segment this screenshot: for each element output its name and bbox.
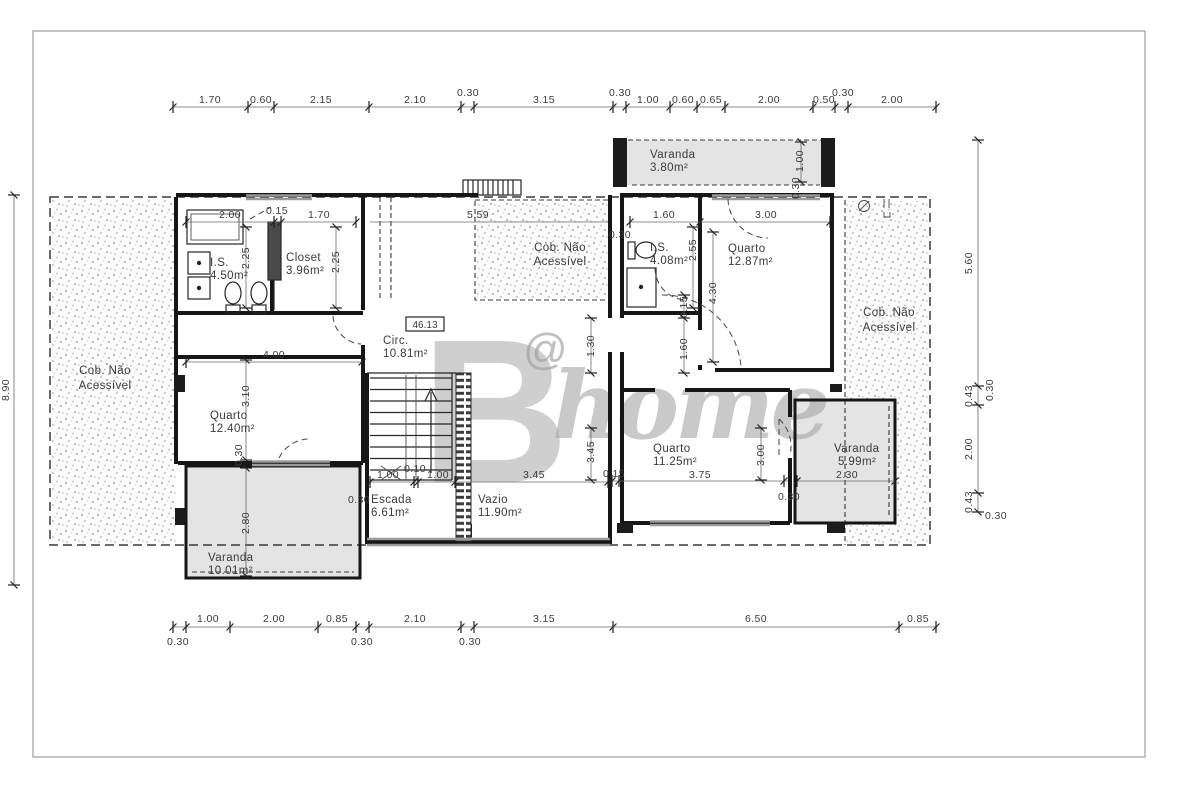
room-vazio-name: Vazio xyxy=(478,494,508,506)
dim-is-right-depth: 2.55 xyxy=(687,239,699,261)
room-escada-name: Escada xyxy=(371,494,412,506)
room-vazio-area: 11.90m² xyxy=(478,507,522,519)
dim-top-12: 0.30 xyxy=(832,87,854,99)
dim-bottom-3: 2.10 xyxy=(404,613,426,625)
dim-top-6: 0.30 xyxy=(609,87,631,99)
roof-left-label-1: Cob. Não xyxy=(79,365,131,377)
room-varanda-top-name: Varanda xyxy=(650,149,696,161)
dim-top-10: 2.00 xyxy=(758,94,780,106)
dim-stair-gap: 0.10 xyxy=(404,463,426,475)
dim-quarto-left-depth: 3.10 xyxy=(240,385,252,407)
dim-is-left-depth: 2.25 xyxy=(240,247,252,269)
floor-plan-drawing: B @ home xyxy=(0,0,1179,789)
dim-wall-015: 0.15 xyxy=(266,205,288,217)
dim-bottom-offset-1: 0.30 xyxy=(351,636,373,648)
floor-plan-sheet: B @ home xyxy=(0,0,1179,789)
room-varanda-left-name: Varanda xyxy=(208,552,254,564)
dim-top-0: 1.70 xyxy=(199,94,221,106)
room-is-right-name: I.S. xyxy=(650,242,669,254)
dim-door-160: 1.60 xyxy=(678,338,690,360)
room-is-left-name: I.S. xyxy=(210,257,229,269)
dim-top-4: 0.30 xyxy=(457,87,479,99)
dim-varanda-top-depth: 1.00 xyxy=(794,150,806,172)
room-escada-area: 6.61m² xyxy=(371,507,409,519)
dim-varanda-right-wall: 0.30 xyxy=(778,491,800,503)
dim-vazio-width: 3.45 xyxy=(523,469,545,481)
level-marker-value: 46.13 xyxy=(412,320,437,331)
dim-bottom-4: 3.15 xyxy=(533,613,555,625)
dim-jamb-015: 0.15 xyxy=(678,296,690,318)
room-quarto-br-area: 11.25m² xyxy=(653,456,697,468)
room-quarto-tr-area: 12.87m² xyxy=(728,256,773,268)
dim-circ-130: 1.30 xyxy=(585,335,597,357)
dim-bottom-offset-0: 0.30 xyxy=(167,636,189,648)
roof-right-label-2: Acessível xyxy=(863,322,916,334)
dim-right-0: 5.60 xyxy=(963,252,975,274)
dim-right-2: 2.00 xyxy=(963,438,975,460)
dim-quarto-tr-width: 3.00 xyxy=(755,209,777,221)
room-closet-name: Closet xyxy=(286,252,321,264)
room-circ-area: 10.81m² xyxy=(383,348,428,360)
pergola-hatch xyxy=(463,180,521,195)
dim-is-left-width: 2.00 xyxy=(219,209,241,221)
dim-quarto-br-depth: 3.00 xyxy=(755,444,767,466)
dim-right-offset-0: 0.30 xyxy=(984,379,996,401)
dim-is-right-width: 1.60 xyxy=(653,209,675,221)
roof-mid-label-2: Acessível xyxy=(534,256,587,268)
dim-left-total: 8.90 xyxy=(0,379,12,401)
dim-bottom-1: 2.00 xyxy=(263,613,285,625)
dim-varanda-left-depth: 2.80 xyxy=(240,512,252,534)
void-guardrail xyxy=(456,373,471,541)
dim-wall-030-left: 0.30 xyxy=(233,444,245,466)
dim-quarto-br-width: 3.75 xyxy=(689,469,711,481)
dim-bottom-5: 6.50 xyxy=(745,613,767,625)
room-quarto-left-area: 12.40m² xyxy=(210,423,255,435)
dim-is-right-wall: 0.30 xyxy=(609,229,631,241)
room-quarto-left-name: Quarto xyxy=(210,410,248,422)
dim-varanda-right-width: 2.30 xyxy=(836,469,858,481)
dim-quarto-tr-depth: 4.30 xyxy=(707,282,719,304)
dim-right-3: 0.43 xyxy=(963,491,975,513)
dim-top-8: 0.60 xyxy=(672,94,694,106)
dim-bottom-2: 0.85 xyxy=(326,613,348,625)
room-circ-name: Circ. xyxy=(383,335,409,347)
roof-left-label-2: Acessível xyxy=(79,380,132,392)
bathroom-left-fixtures xyxy=(187,210,281,313)
wardrobe xyxy=(268,222,281,280)
dim-bottom-offset-2: 0.30 xyxy=(459,636,481,648)
room-is-left-area: 4.50m² xyxy=(210,270,248,282)
dim-top-3: 2.10 xyxy=(404,94,426,106)
dim-quarto-left-width: 4.00 xyxy=(263,349,285,361)
dim-varanda-top-wall: 0.30 xyxy=(790,177,802,199)
room-varanda-right-area: 5.99m² xyxy=(838,456,876,468)
room-varanda-top-area: 3.80m² xyxy=(650,162,688,174)
dim-bottom-0: 1.00 xyxy=(197,613,219,625)
dim-vazio-depth: 3.45 xyxy=(585,441,597,463)
dim-top-1: 0.60 xyxy=(250,94,272,106)
dim-stair-flight-1: 1.00 xyxy=(377,469,399,481)
room-quarto-br-name: Quarto xyxy=(653,443,691,455)
dim-right-1: 0.43 xyxy=(963,385,975,407)
room-quarto-tr-name: Quarto xyxy=(728,243,766,255)
room-varanda-right-name: Varanda xyxy=(834,443,880,455)
dim-top-13: 2.00 xyxy=(881,94,903,106)
room-closet-area: 3.96m² xyxy=(286,265,324,277)
room-is-right-area: 4.08m² xyxy=(650,255,688,267)
dim-roof-mid-width: 5.59 xyxy=(467,209,489,221)
dim-bottom-6: 0.85 xyxy=(907,613,929,625)
dim-top-5: 3.15 xyxy=(533,94,555,106)
dim-escada-wall: 0.30 xyxy=(348,494,370,506)
dim-closet-width: 1.70 xyxy=(308,209,330,221)
dim-top-9: 0.65 xyxy=(700,94,722,106)
room-varanda-left-area: 10.01m² xyxy=(208,565,253,577)
dim-top-2: 2.15 xyxy=(310,94,332,106)
dim-quarto-br-jamb: 0.15 xyxy=(603,468,625,480)
roof-right-label-1: Cob. Não xyxy=(863,307,915,319)
dim-closet-depth: 2.25 xyxy=(330,251,342,273)
dim-stair-flight-2: 1.00 xyxy=(427,469,449,481)
dim-top-7: 1.00 xyxy=(637,94,659,106)
roof-mid-label-1: Cob. Não xyxy=(534,242,586,254)
dim-right-offset-1: 0.30 xyxy=(985,510,1007,522)
